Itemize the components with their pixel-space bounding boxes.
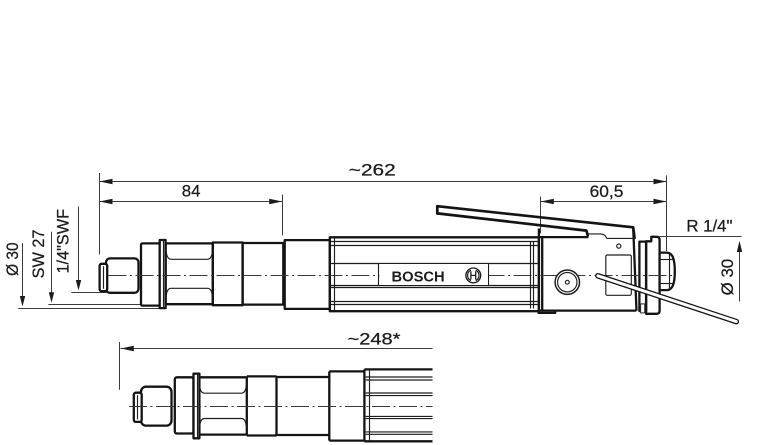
svg-text:~248*: ~248* [348,330,401,349]
svg-text:60,5: 60,5 [590,183,624,201]
svg-text:84: 84 [182,183,201,201]
svg-text:1/4"SWF: 1/4"SWF [55,209,73,274]
svg-text:SW 27: SW 27 [30,230,48,279]
svg-text:~262: ~262 [349,161,396,180]
svg-text:Ø 30: Ø 30 [4,242,22,276]
svg-text:BOSCH: BOSCH [392,268,445,285]
svg-text:Ø 30: Ø 30 [719,259,737,296]
svg-text:R 1/4": R 1/4" [686,218,732,236]
